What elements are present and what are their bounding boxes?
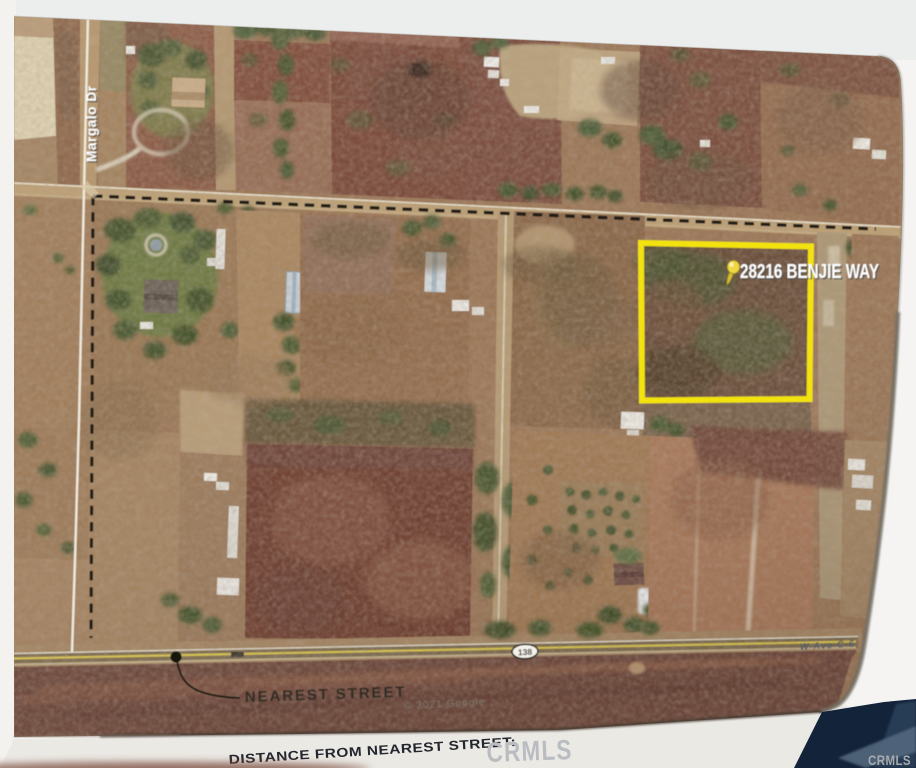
svg-text:28216 BENJIE WAY: 28216 BENJIE WAY: [740, 261, 879, 283]
svg-text:Margalo Dr: Margalo Dr: [84, 85, 99, 162]
svg-text:CRMLS: CRMLS: [868, 753, 911, 768]
svg-text:138: 138: [518, 647, 533, 657]
svg-text:CRMLS: CRMLS: [486, 734, 573, 768]
